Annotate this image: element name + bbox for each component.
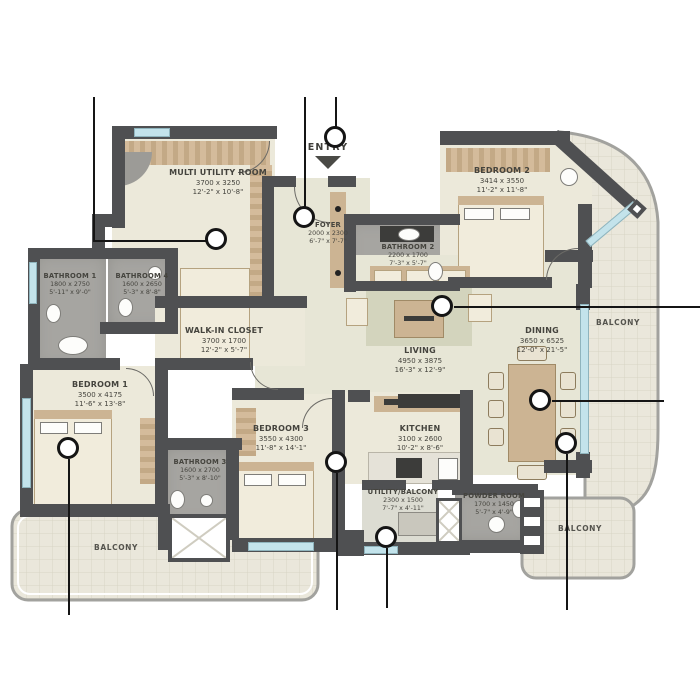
callout-marker-balcony-right[interactable] (555, 432, 577, 454)
callout-line (93, 240, 207, 242)
callout-marker-bedroom3[interactable] (325, 451, 347, 473)
room-name: WALK-IN CLOSET (154, 326, 294, 337)
pillow (278, 474, 306, 486)
callout-marker-dining[interactable] (529, 389, 551, 411)
kitchen-sink (438, 458, 458, 480)
wall-segment (155, 358, 253, 370)
room-dim-mm: 3500 x 4175 (40, 391, 160, 400)
entry-arrow-icon (315, 156, 341, 169)
washbasin (200, 494, 213, 507)
toilet (170, 490, 185, 509)
hob-icon (396, 458, 422, 478)
callout-line (552, 400, 664, 402)
wall-segment (28, 358, 120, 370)
dining-table (508, 364, 556, 462)
callout-line (68, 459, 70, 615)
wall-segment (348, 390, 370, 402)
bedroom3-headboard (238, 462, 314, 471)
dining-chair (488, 372, 504, 390)
room-name: BATHROOM 2 (362, 243, 454, 252)
wall-segment (112, 126, 125, 228)
pillow (74, 422, 102, 434)
room-dim-ft: 7'-7" x 4'-11" (360, 505, 446, 513)
pillow (40, 422, 68, 434)
room-dim-ft: 11'-8" x 14'-1" (221, 444, 341, 453)
dining-chair (488, 400, 504, 418)
window (248, 542, 314, 551)
window (22, 398, 31, 488)
callout-marker-living[interactable] (431, 295, 453, 317)
room-dim-ft: 6'-7" x 7'-7" (288, 238, 368, 246)
wall-segment (344, 281, 460, 291)
wall-segment (440, 131, 570, 145)
room-name: BEDROOM 3 (221, 424, 341, 435)
kitchen-appliance-wall (398, 394, 462, 408)
dining-chair (560, 400, 576, 418)
armchair (346, 298, 368, 326)
room-dim-mm: 2200 x 1700 (362, 252, 454, 260)
room-label-powder-room: POWDER ROOM 1700 x 1450 5'-7" x 4'-9" (452, 492, 536, 518)
bedroom1-headboard (34, 410, 112, 419)
shaft-x-icon (172, 518, 226, 558)
room-dim-mm: 1600 x 2650 (106, 281, 178, 289)
room-dim-mm: 2300 x 1500 (360, 497, 446, 505)
room-name: MULTI UTILITY ROOM (143, 168, 293, 179)
washbasin (398, 228, 420, 241)
balcony-label-bottom-left: BALCONY (94, 543, 138, 552)
room-label-dining: DINING 3650 x 6525 12'-0" x 21'-5" (487, 326, 597, 355)
room-label-multi-utility: MULTI UTILITY ROOM 3700 x 3250 12'-2" x … (143, 168, 293, 197)
room-dim-ft: 10'-2" x 8'-6" (365, 444, 475, 453)
room-label-bedroom2: BEDROOM 2 3414 x 3550 11'-2" x 11'-8" (447, 166, 557, 195)
room-name: KITCHEN (365, 424, 475, 435)
room-dim-ft: 5'-3" x 8'-8" (106, 289, 178, 297)
callout-line (386, 548, 388, 608)
cabinet-knob-icon (335, 270, 341, 276)
room-dim-mm: 3650 x 6525 (487, 337, 597, 346)
bedroom2-headboard (458, 196, 544, 205)
room-label-bedroom1: BEDROOM 1 3500 x 4175 11'-6" x 13'-8" (40, 380, 160, 409)
pillow (464, 208, 494, 220)
room-dim-ft: 7'-3" x 5'-7" (362, 260, 454, 268)
room-label-living: LIVING 4950 x 3875 16'-3" x 12'-9" (360, 346, 480, 375)
coffee-table-tray (404, 316, 434, 321)
room-label-bathroom1: BATHROOM 1 1800 x 2750 5'-11" x 9'-0" (34, 272, 106, 298)
dining-chair (517, 465, 547, 480)
room-name: POWDER ROOM (452, 492, 536, 501)
room-dim-mm: 1600 x 2700 (162, 467, 238, 475)
callout-line (93, 97, 95, 242)
callout-line (566, 454, 568, 610)
room-label-bathroom3: BATHROOM 3 1600 x 2700 5'-3" x 8'-10" (162, 458, 238, 484)
pillow (500, 208, 530, 220)
dining-chair (488, 428, 504, 446)
room-dim-mm: 3700 x 1700 (154, 337, 294, 346)
room-label-utility-balcony: UTILITY/BALCONY 2300 x 1500 7'-7" x 4'-1… (360, 488, 446, 514)
dining-chair (560, 372, 576, 390)
room-dim-mm: 3700 x 3250 (143, 179, 293, 188)
armchair (468, 294, 492, 322)
wall-segment (544, 460, 592, 473)
room-dim-ft: 5'-3" x 8'-10" (162, 475, 238, 483)
room-label-bedroom3: BEDROOM 3 3550 x 4300 11'-8" x 14'-1" (221, 424, 341, 453)
toilet (118, 298, 133, 317)
room-dim-mm: 3100 x 2600 (365, 435, 475, 444)
wall-segment (232, 388, 304, 400)
room-dim-ft: 12'-0" x 21'-5" (487, 346, 597, 355)
wall-segment (328, 176, 356, 187)
room-name: BATHROOM 1 (34, 272, 106, 281)
room-label-bathroom2: BATHROOM 2 2200 x 1700 7'-3" x 5'-7" (362, 243, 454, 269)
room-dim-mm: 1800 x 2750 (34, 281, 106, 289)
cabinet-knob-icon (335, 206, 341, 212)
room-dim-ft: 16'-3" x 12'-9" (360, 366, 480, 375)
shaft (168, 514, 230, 562)
callout-line (335, 97, 337, 128)
callout-marker-utility[interactable] (375, 526, 397, 548)
room-dim-ft: 12'-2" x 10'-8" (143, 188, 293, 197)
callout-marker-foyer[interactable] (293, 206, 315, 228)
callout-line (454, 306, 700, 308)
wall-segment (20, 504, 170, 517)
room-dim-mm: 3550 x 4300 (221, 435, 341, 444)
room-dim-mm: 3414 x 3550 (447, 177, 557, 186)
wall-segment (448, 277, 552, 288)
room-label-kitchen: KITCHEN 3100 x 2600 10'-2" x 8'-6" (365, 424, 475, 453)
bedroom2-stool (560, 168, 578, 186)
callout-line (336, 473, 338, 610)
toilet (46, 304, 61, 323)
pillow (244, 474, 272, 486)
room-dim-ft: 11'-2" x 11'-8" (447, 186, 557, 195)
room-name: BATHROOM 3 (162, 458, 238, 467)
balcony-label-bottom-right: BALCONY (558, 524, 602, 533)
room-dim-ft: 5'-7" x 4'-9" (452, 509, 536, 517)
room-dim-mm: 1700 x 1450 (452, 501, 536, 509)
room-label-walk-in-closet: WALK-IN CLOSET 3700 x 1700 12'-2" x 5'-7… (154, 326, 294, 355)
room-dim-mm: 2000 x 2300 (288, 230, 368, 238)
floor-plan: MULTI UTILITY ROOM 3700 x 3250 12'-2" x … (0, 0, 700, 700)
room-label-bathroom4: BATHROOM 4 1600 x 2650 5'-3" x 8'-8" (106, 272, 178, 298)
bathtub (58, 336, 88, 355)
room-name: LIVING (360, 346, 480, 357)
room-name: BEDROOM 1 (40, 380, 160, 391)
room-name: UTILITY/BALCONY (360, 488, 446, 497)
room-dim-ft: 5'-11" x 9'-0" (34, 289, 106, 297)
room-name: BATHROOM 4 (106, 272, 178, 281)
callout-marker-multi-utility[interactable] (205, 228, 227, 250)
window (134, 128, 170, 137)
wall-segment (28, 248, 178, 259)
room-name: DINING (487, 326, 597, 337)
room-dim-mm: 4950 x 3875 (360, 357, 480, 366)
balcony-label-right: BALCONY (596, 318, 640, 327)
callout-marker-bedroom1[interactable] (57, 437, 79, 459)
room-name: BEDROOM 2 (447, 166, 557, 177)
room-dim-ft: 11'-6" x 13'-8" (40, 400, 160, 409)
wall-segment (155, 296, 307, 308)
callout-marker-entry[interactable] (324, 126, 346, 148)
room-dim-ft: 12'-2" x 5'-7" (154, 346, 294, 355)
washbasin (488, 516, 505, 533)
